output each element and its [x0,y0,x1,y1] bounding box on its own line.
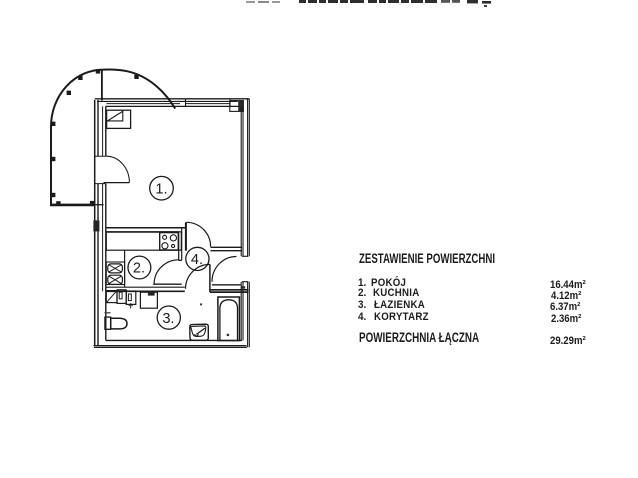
svg-text:2.: 2. [133,261,145,277]
svg-text:1.: 1. [155,181,167,197]
svg-text:3.: 3. [162,311,174,327]
